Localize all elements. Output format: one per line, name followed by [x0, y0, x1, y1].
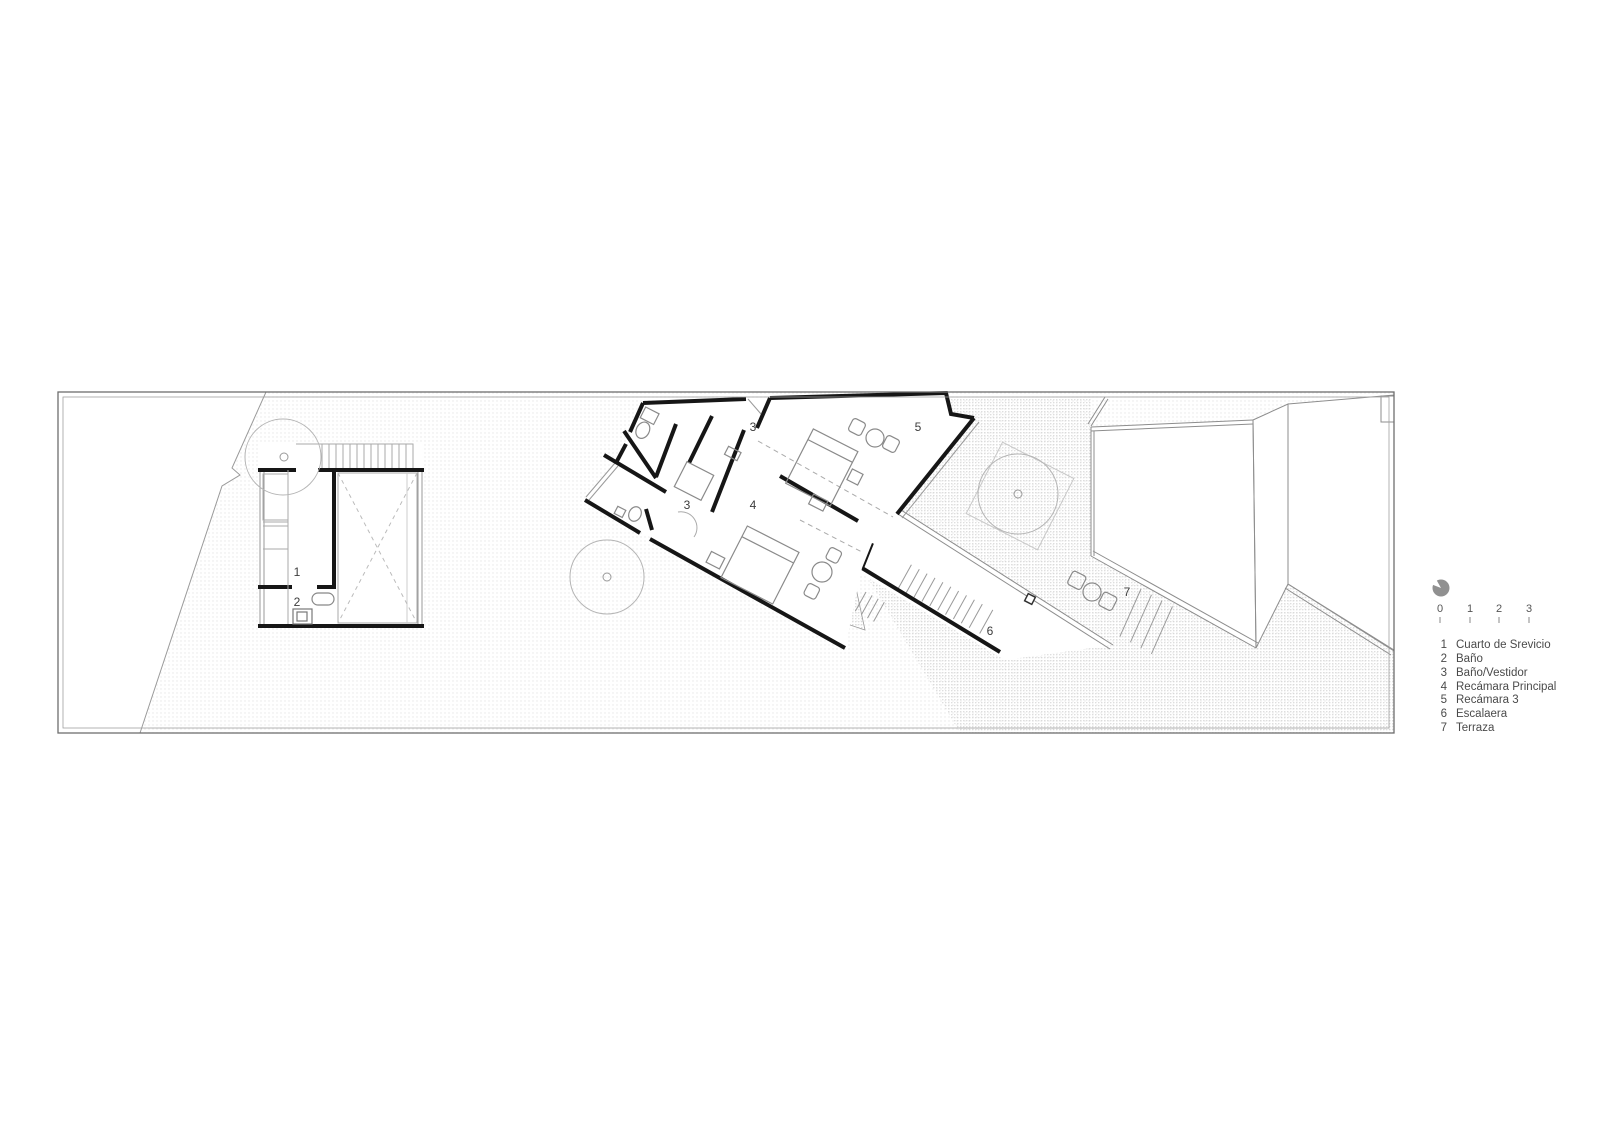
- legend-row: 5 Recámara 3: [1441, 694, 1519, 706]
- svg-text:1: 1: [1441, 639, 1447, 651]
- legend: 1 Cuarto de Srevicio 2 Baño 3 Baño/Vesti…: [1441, 639, 1557, 734]
- label-room-3a: 3: [750, 420, 757, 434]
- svg-text:2: 2: [1441, 653, 1447, 665]
- legend-row: 6 Escalaera: [1441, 708, 1508, 720]
- svg-text:Escalaera: Escalaera: [1456, 708, 1508, 720]
- legend-row: 7 Terraza: [1441, 722, 1495, 734]
- svg-text:Terraza: Terraza: [1456, 722, 1495, 734]
- legend-row: 1 Cuarto de Srevicio: [1441, 639, 1551, 651]
- label-room-4: 4: [750, 498, 757, 512]
- svg-text:3: 3: [1441, 667, 1447, 679]
- service-block: [258, 442, 424, 628]
- label-room-7: 7: [1124, 585, 1131, 599]
- scale-tick-3: 3: [1526, 603, 1532, 615]
- scale-tick-1: 1: [1467, 603, 1473, 615]
- svg-text:7: 7: [1441, 722, 1447, 734]
- scale-tick-0: 0: [1437, 603, 1443, 615]
- label-room-6: 6: [987, 624, 994, 638]
- label-room-1: 1: [294, 565, 301, 579]
- svg-text:Baño/Vestidor: Baño/Vestidor: [1456, 667, 1528, 679]
- legend-row: 2 Baño: [1441, 653, 1483, 665]
- scale-tick-2: 2: [1496, 603, 1502, 615]
- svg-text:4: 4: [1441, 681, 1448, 693]
- svg-text:Recámara Principal: Recámara Principal: [1456, 681, 1556, 693]
- svg-text:Cuarto de Srevicio: Cuarto de Srevicio: [1456, 639, 1551, 651]
- floor-plan-sheet: 1 2 3 3 4 5 6 7 0 1 2 3 1 Cuarto de Srev…: [0, 0, 1600, 1131]
- plan-drawing: 1 2 3 3 4 5 6 7 0 1 2 3 1 Cuarto de Srev…: [0, 0, 1600, 1131]
- north-icon: [1432, 580, 1450, 597]
- svg-text:Baño: Baño: [1456, 653, 1483, 665]
- legend-row: 4 Recámara Principal: [1441, 681, 1557, 693]
- legend-row: 3 Baño/Vestidor: [1441, 667, 1528, 679]
- label-room-2: 2: [294, 595, 301, 609]
- svg-text:6: 6: [1441, 708, 1447, 720]
- label-room-5: 5: [915, 420, 922, 434]
- scale-bar: 0 1 2 3: [1437, 603, 1532, 623]
- svg-text:Recámara 3: Recámara 3: [1456, 694, 1519, 706]
- label-room-3b: 3: [684, 498, 691, 512]
- svg-text:5: 5: [1441, 694, 1447, 706]
